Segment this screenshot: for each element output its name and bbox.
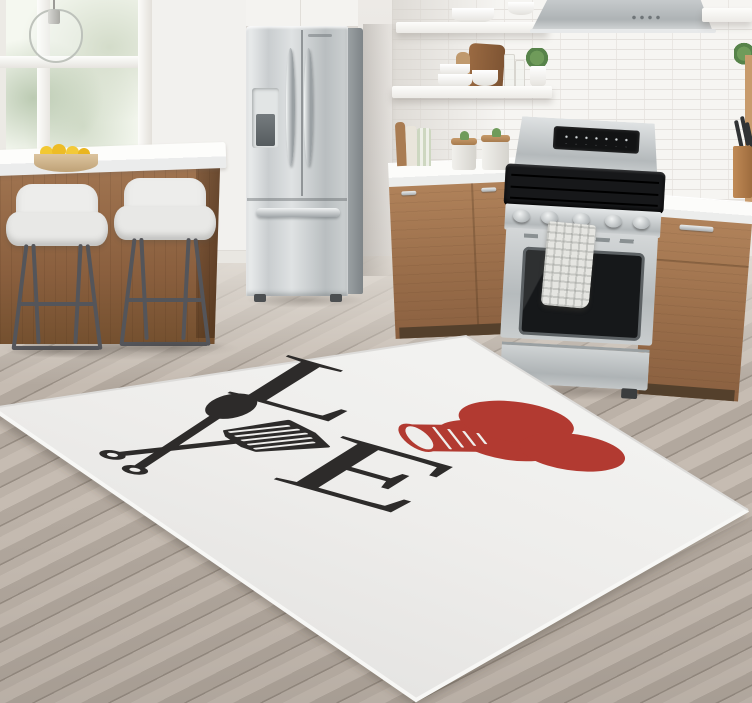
area-rug: L E	[0, 0, 752, 703]
kitchen-photo: L E	[0, 0, 752, 703]
